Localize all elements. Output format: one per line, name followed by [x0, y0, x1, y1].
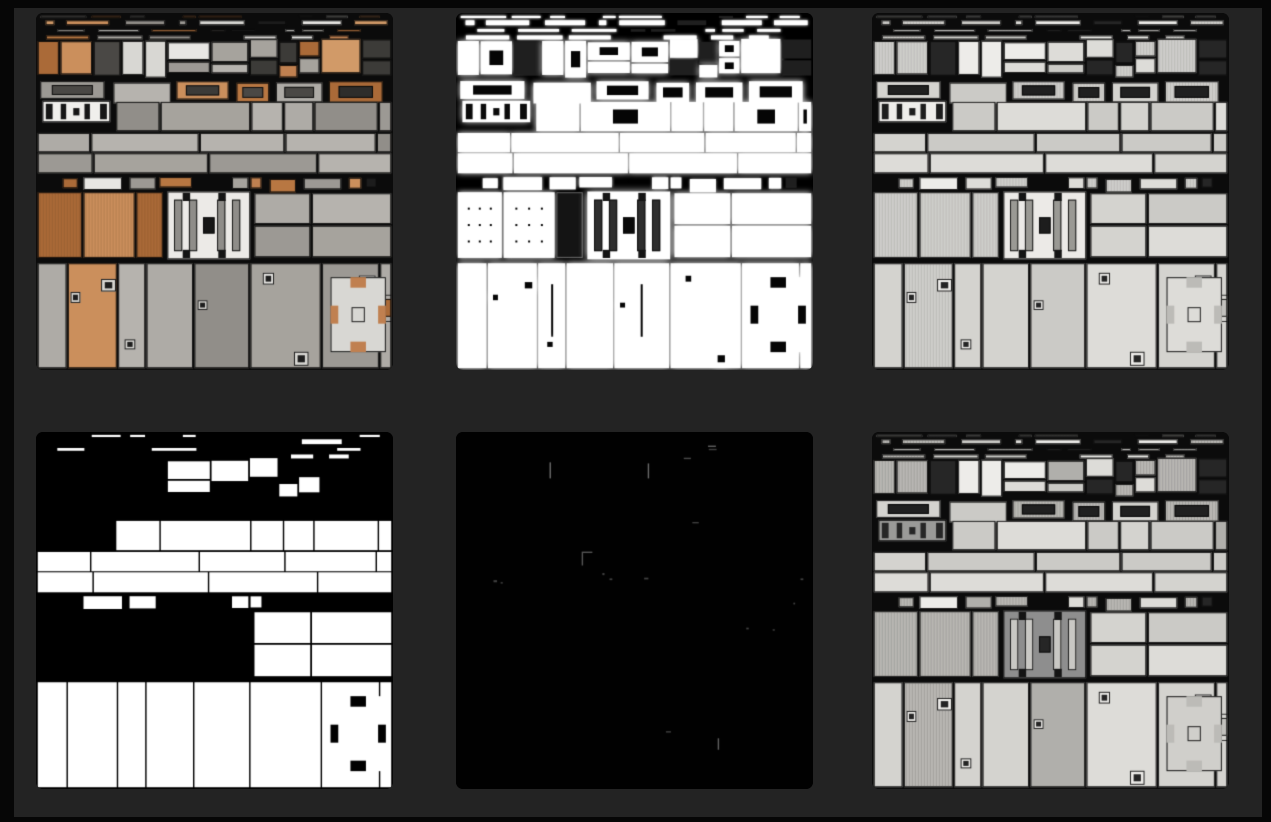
roughness-contrast-atlas-image — [872, 432, 1229, 789]
emissive-dark-atlas-image — [456, 432, 813, 789]
albedo-color-atlas-image — [36, 13, 393, 370]
metal-mask-atlas-image — [36, 432, 393, 789]
tile-albedo-color-atlas[interactable] — [36, 13, 393, 370]
texture-map-viewer — [0, 0, 1271, 822]
roughness-light-atlas-image — [872, 13, 1229, 370]
height-glow-atlas-image — [456, 13, 813, 370]
tile-roughness-contrast-atlas[interactable] — [872, 432, 1229, 789]
tile-metal-mask-atlas[interactable] — [36, 432, 393, 789]
tile-height-glow-atlas[interactable] — [456, 13, 813, 370]
gallery-background — [14, 8, 1262, 817]
tile-emissive-dark-atlas[interactable] — [456, 432, 813, 789]
tile-roughness-light-atlas[interactable] — [872, 13, 1229, 370]
